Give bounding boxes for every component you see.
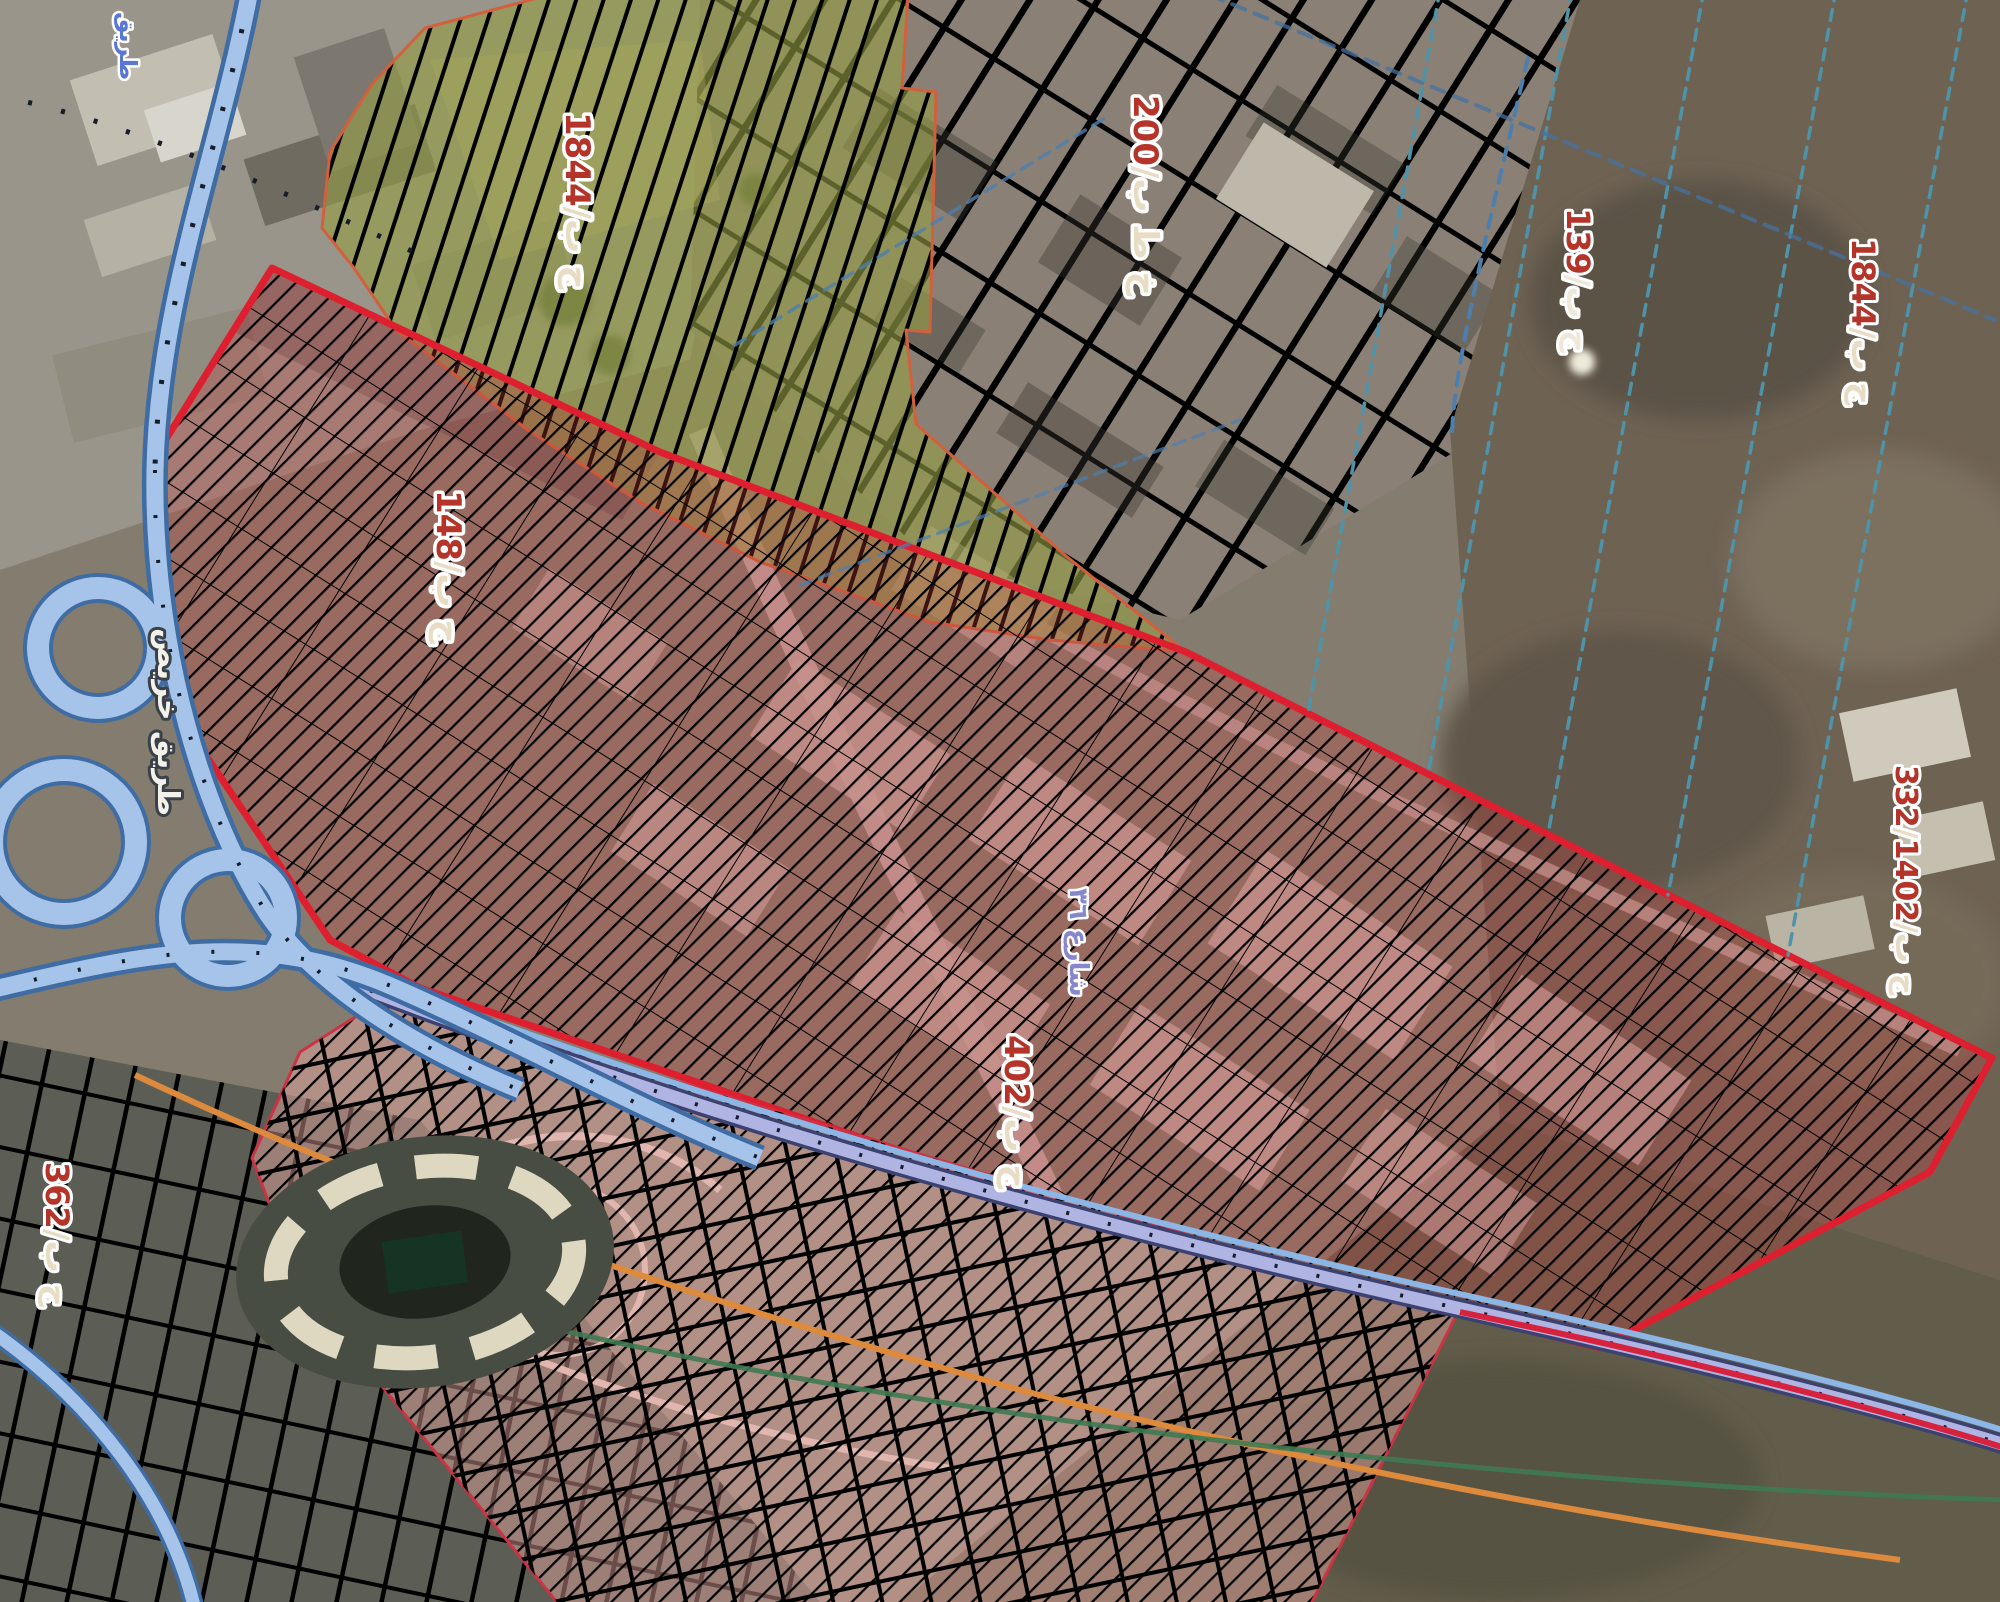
street-label-blue: شارع ٣٦ — [1063, 888, 1093, 997]
plan-label-402: 402/ج ب — [996, 1035, 1036, 1189]
plan-label-332: 332/ج ب/1402 — [1888, 765, 1923, 996]
plan-label-148-text: 148/ج ب — [428, 490, 468, 644]
plan-label-200: 200/خ ط ب — [1125, 95, 1165, 297]
plan-label-1844-east-text: 1844/ج ب — [1844, 238, 1882, 406]
map-viewport[interactable]: 1844/ج ب200/خ ط ب139/ج ب1844/ج ب148/ج ب3… — [0, 0, 2000, 1602]
stadium-pitch — [382, 1231, 468, 1294]
plan-label-1844-east: 1844/ج ب — [1844, 238, 1882, 406]
road-label-top-left-text: طريق — [114, 12, 142, 80]
plan-label-1844-olive-text: 1844/ج ب — [557, 112, 597, 290]
map-canvas[interactable]: 1844/ج ب200/خ ط ب139/ج ب1844/ج ب148/ج ب3… — [0, 0, 2000, 1602]
plan-label-148: 148/ج ب — [428, 490, 468, 644]
plan-label-332-text: 332/ج ب/1402 — [1888, 765, 1923, 996]
plan-label-139: 139/ج ب — [1559, 208, 1597, 354]
plan-label-200-text: 200/خ ط ب — [1125, 95, 1165, 297]
plan-label-362-text: 362/ج ب — [38, 1162, 76, 1308]
plan-label-402-text: 402/ج ب — [996, 1035, 1036, 1189]
plan-label-139-text: 139/ج ب — [1559, 208, 1597, 354]
road-label-top-left: طريق — [114, 12, 142, 80]
water-tank-dot — [1569, 349, 1595, 375]
plan-label-362: 362/ج ب — [38, 1162, 76, 1308]
plan-label-1844-olive: 1844/ج ب — [557, 112, 597, 290]
street-label-blue-text: شارع ٣٦ — [1063, 888, 1093, 997]
road-label-khurais: طريق خريص — [150, 628, 185, 816]
road-label-khurais-text: طريق خريص — [150, 628, 185, 816]
